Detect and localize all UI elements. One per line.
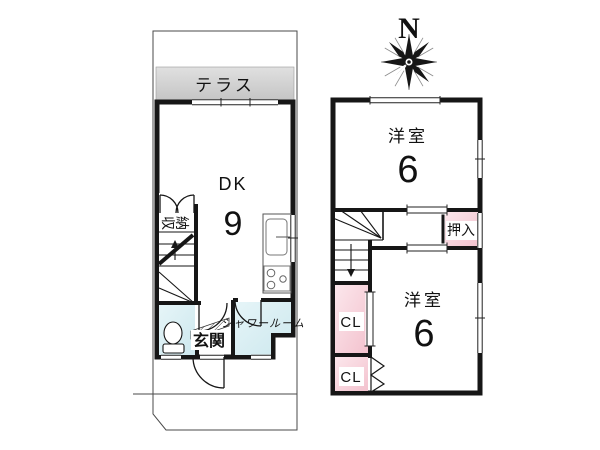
stove [264,266,290,291]
window-2f-right-mid [477,213,483,248]
north-label: N [398,12,420,45]
terrace: テラス [156,32,294,100]
genkan-label: 玄関 [193,331,225,350]
closet-lower-label: CL [340,369,361,386]
room-top-label: 洋室 [388,127,428,146]
window-2f-top [370,96,440,105]
door-closet-upper [365,292,376,346]
window-toilet [161,355,181,361]
kitchen-counter [263,214,291,293]
room-bottom-size: 6 [413,313,434,355]
dk-size: 9 [224,205,243,243]
entrance-door [193,357,224,388]
entrance-opening [200,355,224,361]
window-shower [251,355,271,361]
window-2f-right-bottom [475,283,485,353]
shower-label: シャワールーム [221,318,305,330]
window-2f-right-top [475,140,485,178]
bifold-door-icon [371,357,384,392]
door-room-bottom [407,243,447,254]
floor1-plan: 収納 [157,98,305,388]
toilet-icon [163,322,184,353]
room-top-size: 6 [397,149,418,191]
floorplan-page: テラス [0,0,600,450]
oshiire-label: 押入 [447,222,475,238]
floor2-plan: 洋室 6 押入 CL CL 洋室 6 [333,96,485,393]
room-bottom-label: 洋室 [404,291,444,310]
window-terrace [192,98,278,107]
door-room-top [407,205,447,216]
dk-label: DK [218,174,247,194]
closet-upper-label: CL [340,314,361,331]
storage-label: 収納 [160,216,190,230]
terrace-label: テラス [195,76,255,95]
floorplan-image: テラス [0,0,600,450]
compass-rose: N [381,12,437,90]
